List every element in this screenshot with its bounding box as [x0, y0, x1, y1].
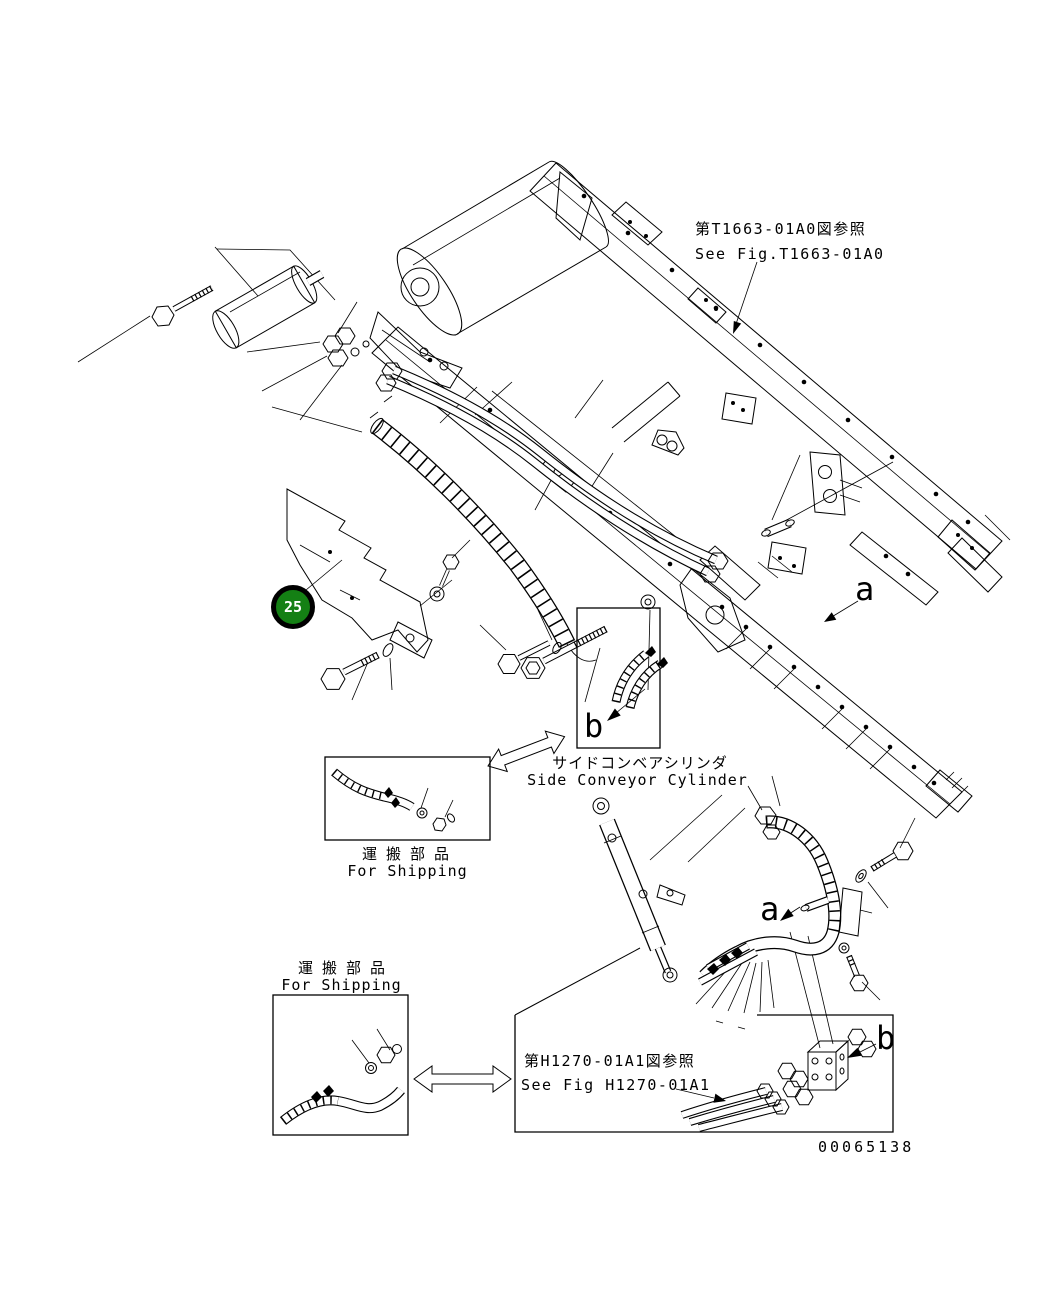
part-balloon-number: 25 [284, 598, 302, 616]
view-letter-a-1: a [855, 573, 874, 605]
shut-off-valve-drawing [208, 262, 322, 352]
ref-note-t1663-en: See Fig.T1663-01A0 [695, 243, 885, 266]
frame-bolt-right-drawing [854, 842, 913, 884]
shipping-box-2 [273, 995, 408, 1135]
side-conveyor-cylinder-drawing [593, 798, 685, 982]
view-letter-b-1: b [584, 710, 603, 742]
tick-leaders [726, 629, 890, 769]
cylinder-hose-loop [700, 807, 872, 982]
parts-diagram-page: 第T1663-01A0図参照 See Fig.T1663-01A0 サイドコンベ… [0, 0, 1063, 1302]
label-side-conveyor-cylinder-jp: サイドコンベアシリンダ [540, 752, 740, 773]
mount-bolt-drawing [152, 288, 212, 326]
view-arrow-a2 [780, 907, 800, 921]
drawing-number: 00065138 [818, 1138, 914, 1156]
label-shipping-1-en: For Shipping [330, 862, 485, 880]
label-shipping-1-jp: 運搬部品 [330, 843, 490, 864]
view-arrow-a1 [824, 601, 858, 622]
hose-fittings-cluster [323, 328, 392, 418]
guard-bolt-drawing [321, 642, 395, 689]
sleeve-fitting-drawing [761, 519, 795, 538]
small-bolt-washer-drawing [430, 555, 459, 601]
head-drum-drawing [370, 161, 608, 388]
ref-note-t1663-jp: 第T1663-01A0図参照 [695, 218, 866, 241]
conveyor-frame [370, 161, 1010, 818]
view-letter-b-2: b [876, 1022, 895, 1054]
bolt-marks [428, 194, 974, 786]
label-shipping-2-en: For Shipping [264, 976, 419, 994]
shipping-box-1 [325, 757, 490, 840]
label-shipping-2-jp: 運搬部品 [266, 957, 426, 978]
leader-lines [78, 247, 915, 1048]
ref-note-h1270-jp: 第H1270-01A1図参照 [524, 1050, 695, 1073]
part-balloon-25[interactable]: 25 [271, 585, 315, 629]
view-letter-a-2: a [760, 893, 779, 925]
guard-plate-drawing [287, 489, 432, 658]
ref-note-h1270-en: See Fig H1270-01A1 [521, 1074, 711, 1097]
label-side-conveyor-cylinder-en: Side Conveyor Cylinder [525, 771, 750, 789]
double-arrow-lower [414, 1066, 511, 1092]
cross-member-drawing [612, 382, 680, 442]
parts-diagram-line-art [0, 0, 1063, 1302]
